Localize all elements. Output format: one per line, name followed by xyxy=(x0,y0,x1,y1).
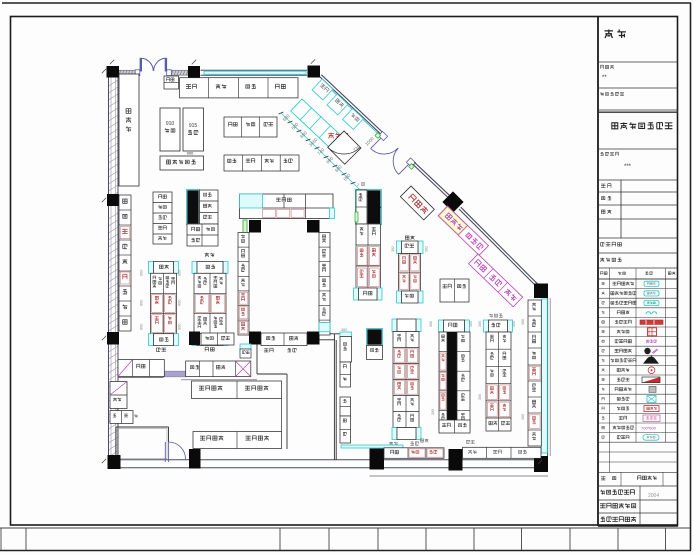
svg-text:***: *** xyxy=(624,164,632,170)
svg-text:302: 302 xyxy=(425,246,429,252)
svg-text:915: 915 xyxy=(189,123,198,129)
svg-text:300: 300 xyxy=(478,394,482,400)
svg-text:300: 300 xyxy=(521,414,525,420)
svg-text:300: 300 xyxy=(431,409,435,415)
svg-text:300: 300 xyxy=(512,321,516,327)
svg-text:900: 900 xyxy=(140,324,144,330)
svg-text:700*600: 700*600 xyxy=(641,425,657,430)
svg-text:300: 300 xyxy=(478,321,482,327)
svg-text:900: 900 xyxy=(178,300,182,306)
svg-text:360: 360 xyxy=(341,328,347,332)
svg-text:910: 910 xyxy=(166,121,175,127)
svg-text:900: 900 xyxy=(140,270,144,276)
svg-text:300: 300 xyxy=(469,321,473,327)
svg-text:900: 900 xyxy=(178,270,182,276)
svg-text:302: 302 xyxy=(391,246,395,252)
svg-text:900: 900 xyxy=(178,324,182,330)
svg-text:2004: 2004 xyxy=(648,493,659,499)
svg-text:**: ** xyxy=(602,75,607,81)
svg-text:300: 300 xyxy=(521,319,525,325)
svg-text:900: 900 xyxy=(140,300,144,306)
svg-text:300: 300 xyxy=(429,321,433,327)
svg-text:900: 900 xyxy=(187,151,194,156)
